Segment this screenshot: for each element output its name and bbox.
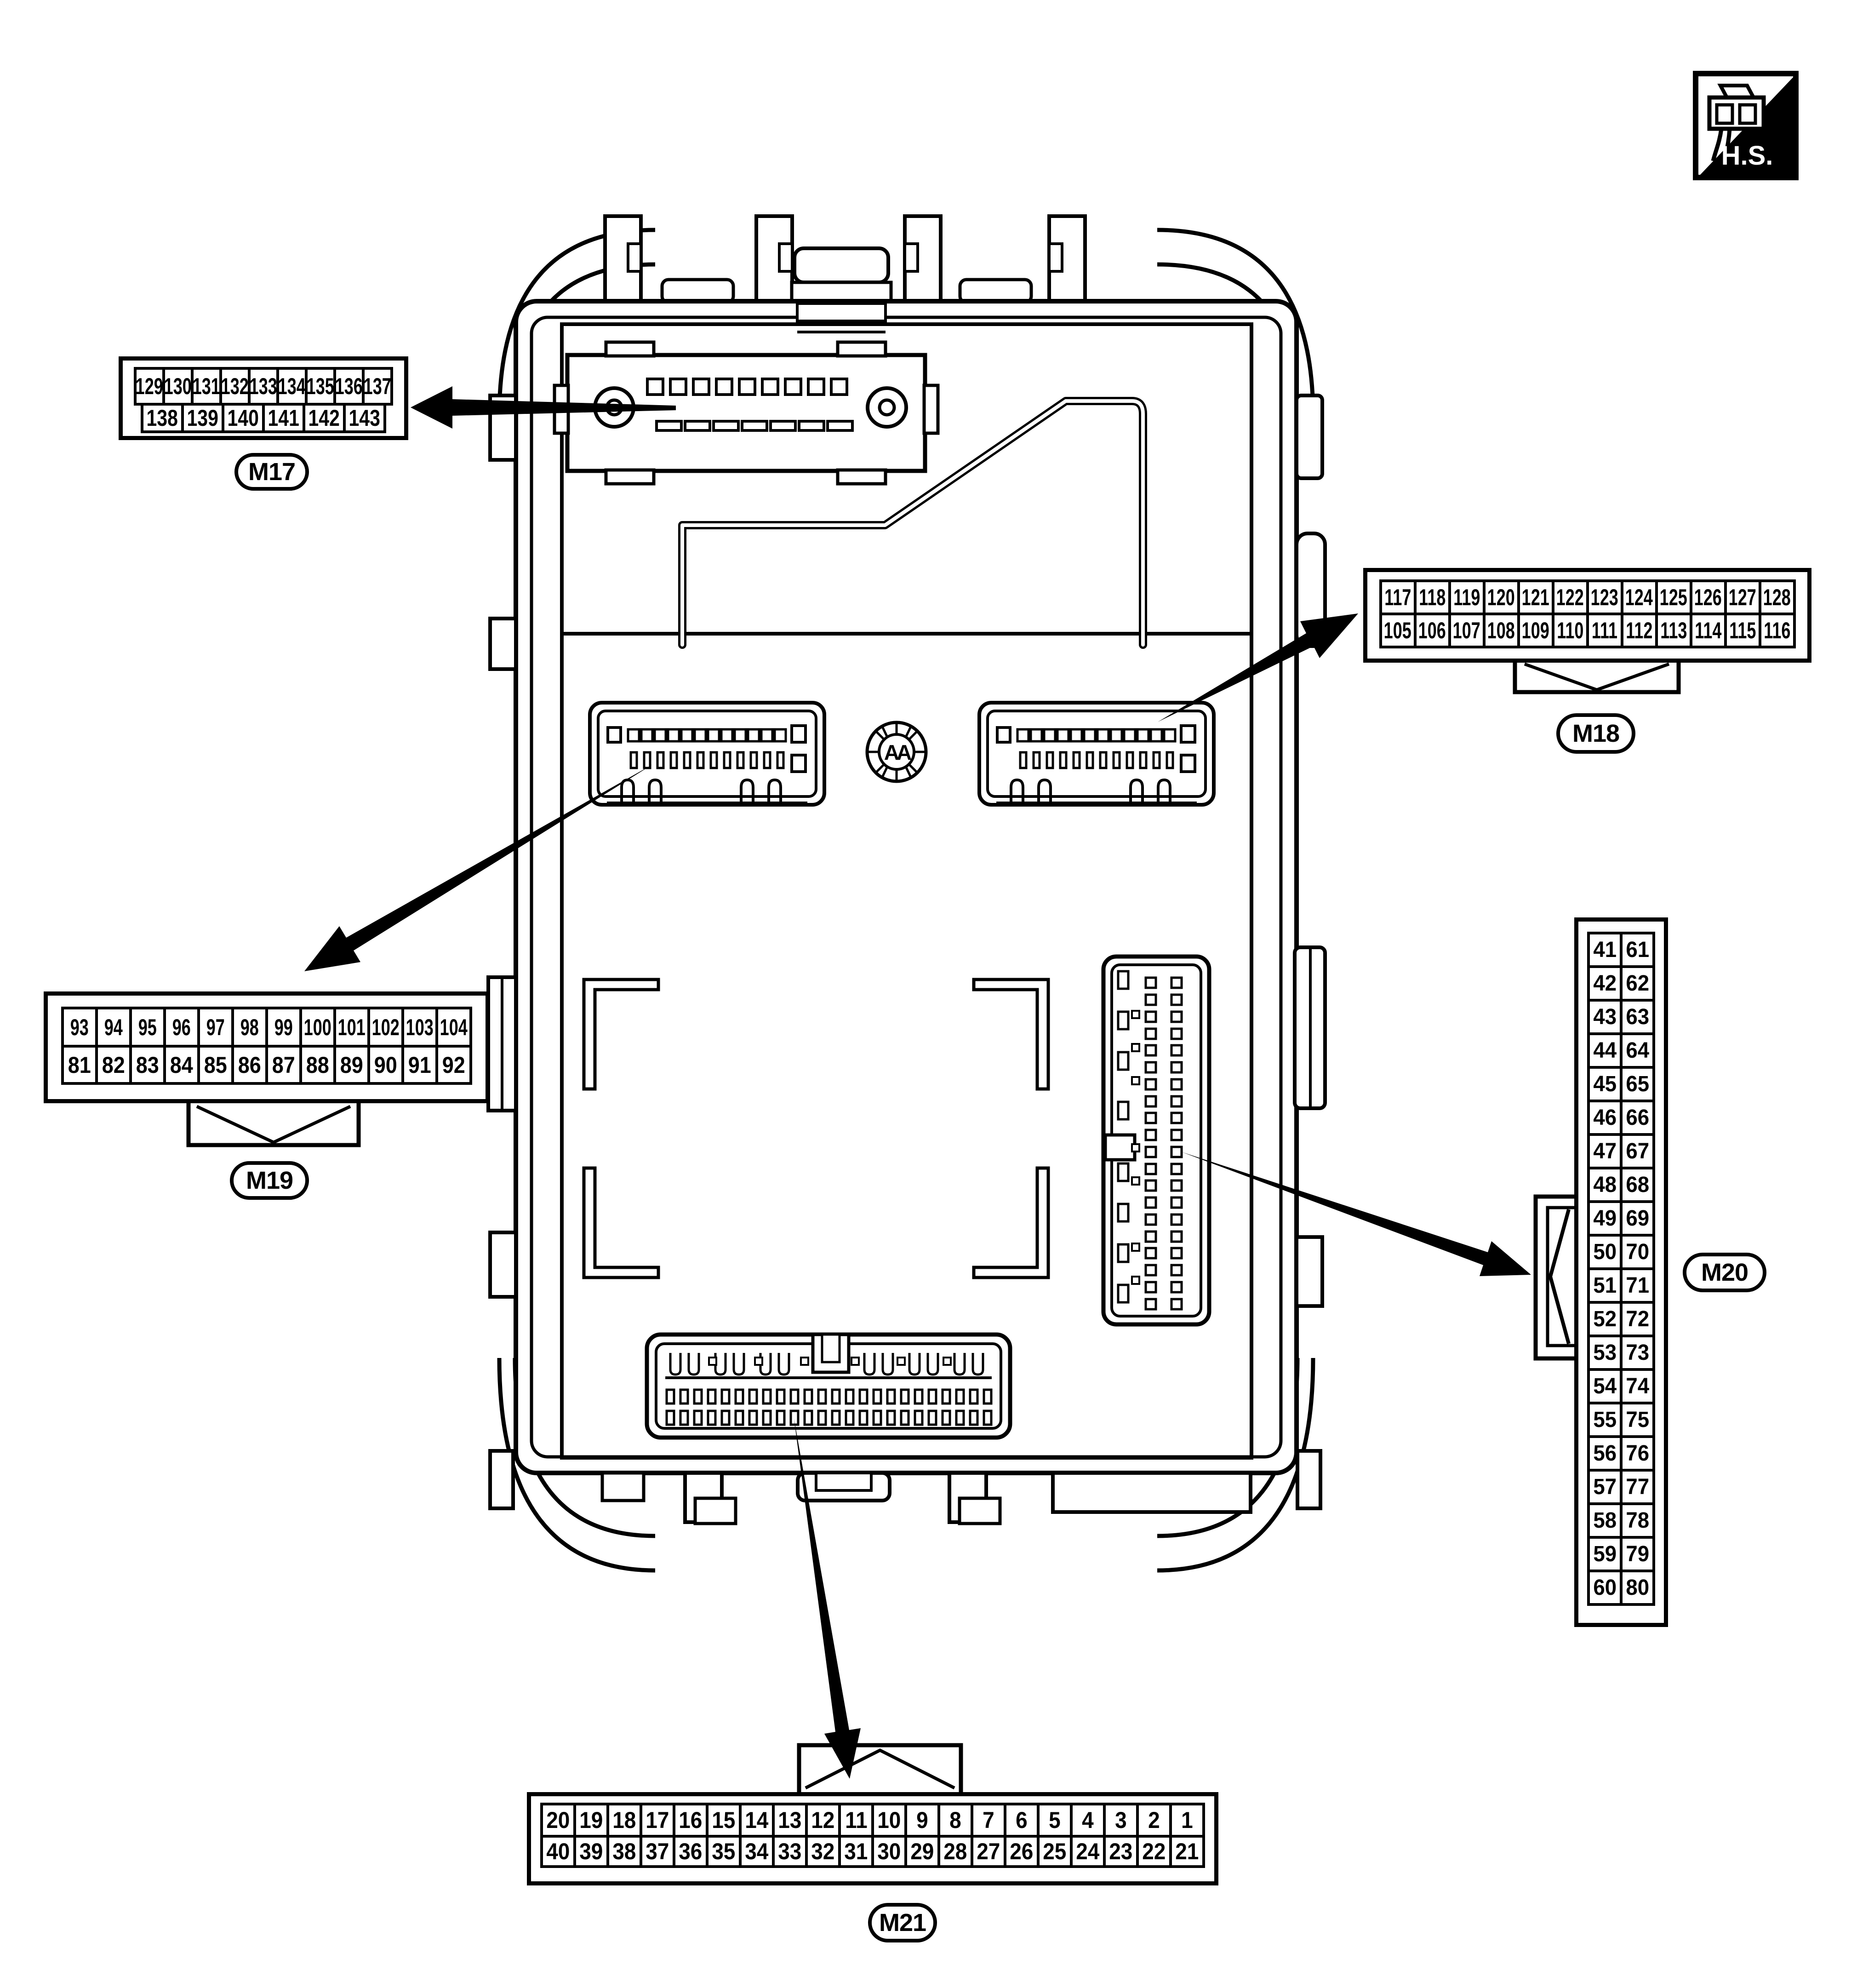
pin-cell: 142 <box>303 403 346 433</box>
pin-cell: 119 <box>1448 579 1486 615</box>
pin-cell: 111 <box>1586 613 1623 648</box>
pin-cell: 18 <box>606 1803 642 1838</box>
pin-cell: 137 <box>362 367 393 406</box>
pin-cell: 121 <box>1517 579 1554 615</box>
pin-cell: 130 <box>162 367 194 406</box>
pin-cell: 23 <box>1103 1835 1139 1868</box>
m21-row-bottom: 40 3938373635343332313029282726252423222… <box>540 1835 1205 1868</box>
pin-cell: 107 <box>1448 613 1486 648</box>
bcm-unit-drawing: AA <box>488 216 1325 1570</box>
pin-cell: 45 <box>1587 1066 1623 1102</box>
housing-bottom-tabs <box>602 1473 1251 1524</box>
m18-keyway-tab <box>1515 661 1679 692</box>
pin-cell: 32 <box>805 1835 841 1868</box>
unit-connector-top <box>554 342 938 484</box>
pin-cell: 25 <box>1037 1835 1073 1868</box>
pin-cell: 78 <box>1620 1502 1655 1539</box>
pin-cell: 114 <box>1690 613 1727 648</box>
pin-cell: 1 <box>1169 1803 1205 1838</box>
pin-cell: 76 <box>1620 1435 1655 1472</box>
unit-marking-aa: AA <box>867 722 926 781</box>
pin-cell: 44 <box>1587 1032 1623 1069</box>
pin-cell: 64 <box>1620 1032 1655 1069</box>
pin-cell: 48 <box>1587 1167 1623 1203</box>
pin-cell: 134 <box>276 367 308 406</box>
pin-cell: 31 <box>838 1835 874 1868</box>
pin-cell: 24 <box>1070 1835 1106 1868</box>
pin-cell: 62 <box>1620 965 1655 1002</box>
unit-connector-bottom <box>647 1335 1010 1438</box>
pin-cell: 136 <box>333 367 365 406</box>
pin-cell: 143 <box>343 403 386 433</box>
pin-cell: 60 <box>1587 1570 1623 1606</box>
pin-cell: 102 <box>367 1007 404 1048</box>
pin-cell: 96 <box>163 1007 200 1048</box>
pin-cell: 138 <box>141 403 184 433</box>
connector-m20-pin-table: 41 4243444546474849505152535455565758596… <box>1574 917 1668 1627</box>
pin-cell: 97 <box>197 1007 234 1048</box>
pin-cell: 117 <box>1379 579 1417 615</box>
pin-cell: 118 <box>1414 579 1451 615</box>
m19-row-bottom: 81 8283848586878889909192 <box>61 1045 472 1085</box>
pin-cell: 94 <box>95 1007 132 1048</box>
pin-cell: 95 <box>129 1007 166 1048</box>
m20-column-right: 61 6263646566676869707172737475767778798… <box>1620 932 1655 1606</box>
pin-cell: 86 <box>231 1045 268 1085</box>
housing-top-tabs <box>605 216 1085 304</box>
pin-cell: 12 <box>805 1803 841 1838</box>
connector-m19-pin-table: 93 949596979899100101102103104 81 828384… <box>44 991 490 1103</box>
pin-cell: 71 <box>1620 1267 1655 1304</box>
pin-cell: 33 <box>772 1835 808 1868</box>
m18-row-top: 117 118119120121122123124125126127128 <box>1379 579 1796 615</box>
pin-cell: 75 <box>1620 1402 1655 1438</box>
pin-cell: 123 <box>1586 579 1623 615</box>
pin-cell: 58 <box>1587 1502 1623 1539</box>
pin-cell: 90 <box>367 1045 404 1085</box>
pin-cell: 100 <box>299 1007 336 1048</box>
pin-cell: 98 <box>231 1007 268 1048</box>
pin-cell: 27 <box>971 1835 1006 1868</box>
pin-cell: 42 <box>1587 965 1623 1002</box>
unit-connector-mid-left <box>590 703 824 805</box>
pin-cell: 135 <box>305 367 336 406</box>
pin-cell: 89 <box>333 1045 370 1085</box>
pin-cell: 141 <box>262 403 305 433</box>
pin-cell: 131 <box>191 367 222 406</box>
m18-row-bottom: 105 106107108109110111112113114115116 <box>1379 613 1796 648</box>
connector-m20-label: M20 <box>1683 1253 1766 1292</box>
pin-cell: 106 <box>1414 613 1451 648</box>
connector-m18-pin-table: 117 118119120121122123124125126127128 10… <box>1363 568 1811 663</box>
pin-cell: 93 <box>61 1007 98 1048</box>
pin-cell: 68 <box>1620 1167 1655 1203</box>
connector-m17-label: M17 <box>234 453 309 491</box>
pin-cell: 53 <box>1587 1335 1623 1371</box>
pin-cell: 36 <box>673 1835 709 1868</box>
pin-cell: 83 <box>129 1045 166 1085</box>
pin-cell: 15 <box>706 1803 742 1838</box>
pin-cell: 99 <box>265 1007 302 1048</box>
pin-cell: 61 <box>1620 932 1655 968</box>
pin-cell: 54 <box>1587 1368 1623 1404</box>
pin-cell: 14 <box>739 1803 775 1838</box>
pin-cell: 70 <box>1620 1234 1655 1270</box>
pin-cell: 66 <box>1620 1100 1655 1136</box>
pin-cell: 20 <box>540 1803 576 1838</box>
harness-symbol-hs-icon: H.S. <box>1696 74 1796 178</box>
m21-row-top: 20 19181716151413121110987654321 <box>540 1803 1205 1838</box>
pin-cell: 116 <box>1759 613 1796 648</box>
pin-cell: 115 <box>1724 613 1761 648</box>
pin-cell: 104 <box>435 1007 472 1048</box>
pin-cell: 3 <box>1103 1803 1139 1838</box>
pin-cell: 43 <box>1587 999 1623 1035</box>
pin-cell: 91 <box>401 1045 438 1085</box>
pin-cell: 30 <box>871 1835 907 1868</box>
pin-cell: 59 <box>1587 1536 1623 1572</box>
pin-cell: 72 <box>1620 1301 1655 1337</box>
pin-cell: 133 <box>248 367 279 406</box>
pin-cell: 38 <box>606 1835 642 1868</box>
pin-cell: 132 <box>219 367 251 406</box>
pin-cell: 50 <box>1587 1234 1623 1270</box>
pin-cell: 41 <box>1587 932 1623 968</box>
pin-cell: 139 <box>181 403 224 433</box>
pin-cell: 65 <box>1620 1066 1655 1102</box>
pin-cell: 87 <box>265 1045 302 1085</box>
pin-cell: 122 <box>1552 579 1589 615</box>
pin-cell: 126 <box>1690 579 1727 615</box>
pin-cell: 56 <box>1587 1435 1623 1472</box>
pin-cell: 6 <box>1004 1803 1040 1838</box>
pin-cell: 57 <box>1587 1469 1623 1505</box>
pin-cell: 67 <box>1620 1133 1655 1169</box>
pin-cell: 84 <box>163 1045 200 1085</box>
pin-cell: 17 <box>640 1803 675 1838</box>
pin-cell: 7 <box>971 1803 1006 1838</box>
pin-cell: 69 <box>1620 1200 1655 1237</box>
pin-cell: 113 <box>1655 613 1692 648</box>
pin-cell: 74 <box>1620 1368 1655 1404</box>
pin-cell: 125 <box>1655 579 1692 615</box>
pin-cell: 103 <box>401 1007 438 1048</box>
pin-cell: 120 <box>1483 579 1520 615</box>
m19-keyway-tab <box>189 1102 359 1145</box>
pin-cell: 85 <box>197 1045 234 1085</box>
pin-cell: 26 <box>1004 1835 1040 1868</box>
pin-cell: 52 <box>1587 1301 1623 1337</box>
pin-cell: 105 <box>1379 613 1417 648</box>
wiring-diagram-page: AA <box>0 0 1857 1988</box>
m17-row-bottom: 138 139140141142143 <box>141 403 386 433</box>
m19-row-top: 93 949596979899100101102103104 <box>61 1007 472 1048</box>
pin-cell: 73 <box>1620 1335 1655 1371</box>
pin-cell: 81 <box>61 1045 98 1085</box>
pin-cell: 82 <box>95 1045 132 1085</box>
pin-cell: 88 <box>299 1045 336 1085</box>
pin-cell: 40 <box>540 1835 576 1868</box>
m17-row-top: 129 130131132133134135136137 <box>134 367 393 406</box>
pin-cell: 101 <box>333 1007 370 1048</box>
pin-cell: 21 <box>1169 1835 1205 1868</box>
pin-cell: 11 <box>838 1803 874 1838</box>
pin-cell: 10 <box>871 1803 907 1838</box>
pin-cell: 80 <box>1620 1570 1655 1606</box>
pin-cell: 34 <box>739 1835 775 1868</box>
pin-cell: 2 <box>1136 1803 1172 1838</box>
pin-cell: 108 <box>1483 613 1520 648</box>
pin-cell: 79 <box>1620 1536 1655 1572</box>
hs-badge-label: H.S. <box>1721 141 1773 171</box>
connector-m21-label: M21 <box>868 1903 937 1942</box>
pin-cell: 29 <box>904 1835 940 1868</box>
pin-cell: 5 <box>1037 1803 1073 1838</box>
pin-cell: 46 <box>1587 1100 1623 1136</box>
pin-cell: 28 <box>937 1835 973 1868</box>
connector-m17-pin-table: 129 130131132133134135136137 138 1391401… <box>119 356 408 440</box>
connector-m19-label: M19 <box>230 1161 309 1200</box>
pin-cell: 112 <box>1621 613 1658 648</box>
pin-cell: 128 <box>1759 579 1796 615</box>
pin-cell: 49 <box>1587 1200 1623 1237</box>
unit-connector-right <box>1103 957 1209 1324</box>
pin-cell: 37 <box>640 1835 675 1868</box>
pin-cell: 77 <box>1620 1469 1655 1505</box>
pin-cell: 39 <box>573 1835 609 1868</box>
pin-cell: 19 <box>573 1803 609 1838</box>
pin-cell: 110 <box>1552 613 1589 648</box>
pin-cell: 8 <box>937 1803 973 1838</box>
m21-keyway-tab <box>799 1745 961 1793</box>
pin-cell: 16 <box>673 1803 709 1838</box>
connector-m21-pin-table: 20 19181716151413121110987654321 40 3938… <box>527 1792 1218 1885</box>
pin-cell: 127 <box>1724 579 1761 615</box>
pin-cell: 92 <box>435 1045 472 1085</box>
pin-cell: 63 <box>1620 999 1655 1035</box>
pin-cell: 13 <box>772 1803 808 1838</box>
pin-cell: 129 <box>134 367 165 406</box>
pin-cell: 55 <box>1587 1402 1623 1438</box>
m20-latch-notch <box>1536 1197 1574 1358</box>
pin-cell: 22 <box>1136 1835 1172 1868</box>
pin-cell: 124 <box>1621 579 1658 615</box>
svg-text:AA: AA <box>884 740 911 764</box>
unit-connector-mid-right <box>979 703 1214 805</box>
pin-cell: 51 <box>1587 1267 1623 1304</box>
m20-column-left: 41 4243444546474849505152535455565758596… <box>1587 932 1623 1606</box>
pin-cell: 109 <box>1517 613 1554 648</box>
pin-cell: 9 <box>904 1803 940 1838</box>
pin-cell: 47 <box>1587 1133 1623 1169</box>
pin-cell: 35 <box>706 1835 742 1868</box>
connector-m18-label: M18 <box>1556 713 1635 754</box>
pin-cell: 4 <box>1070 1803 1106 1838</box>
pin-cell: 140 <box>222 403 265 433</box>
